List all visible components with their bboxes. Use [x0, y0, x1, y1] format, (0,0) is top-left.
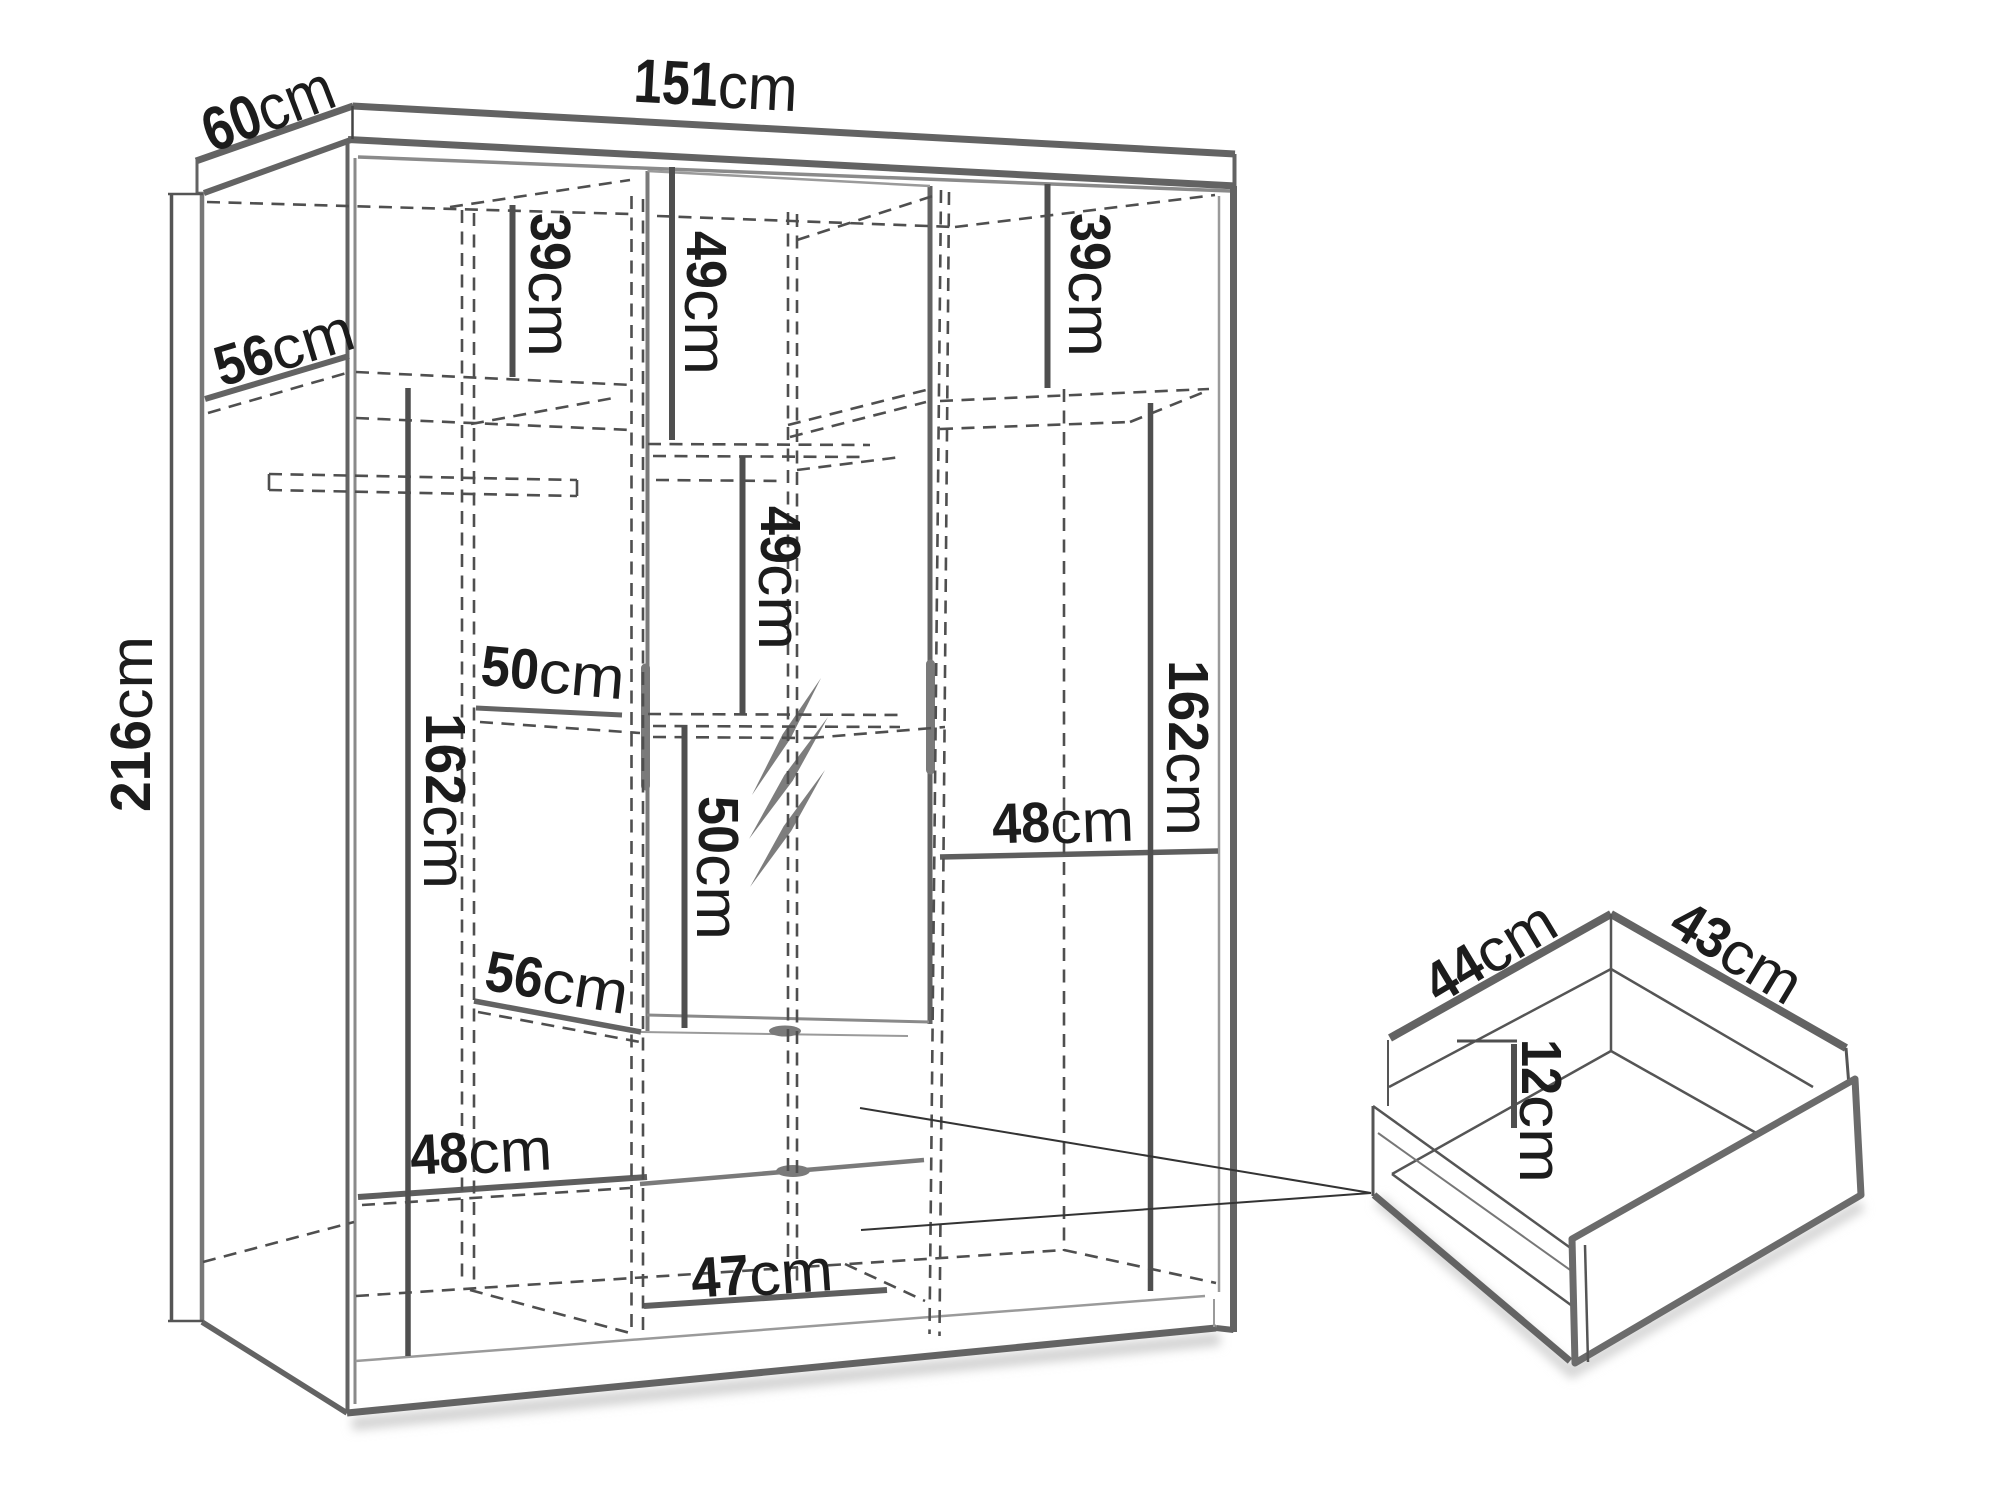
- svg-text:48cm: 48cm: [408, 1115, 553, 1189]
- svg-text:47cm: 47cm: [689, 1236, 835, 1313]
- svg-text:48cm: 48cm: [991, 786, 1135, 858]
- svg-text:216cm: 216cm: [98, 636, 165, 812]
- svg-text:49cm: 49cm: [747, 506, 814, 650]
- svg-text:50cm: 50cm: [685, 796, 752, 940]
- svg-text:12cm: 12cm: [1508, 1039, 1575, 1183]
- svg-text:162cm: 162cm: [1155, 660, 1222, 836]
- svg-text:151cm: 151cm: [632, 45, 800, 125]
- svg-text:39cm: 39cm: [1057, 213, 1124, 357]
- svg-text:39cm: 39cm: [517, 213, 584, 357]
- svg-text:162cm: 162cm: [412, 713, 479, 889]
- svg-text:49cm: 49cm: [673, 231, 740, 375]
